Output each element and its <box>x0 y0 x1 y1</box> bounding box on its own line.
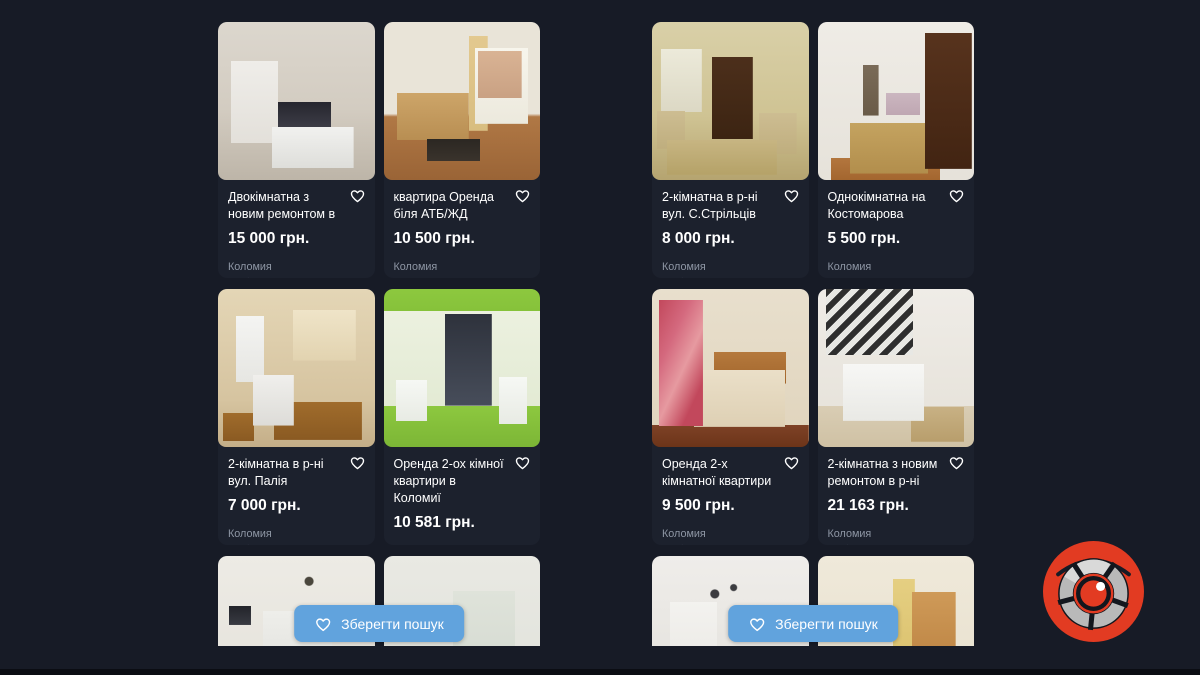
listing-body: 2-кімнатна в р-ні вул. С.Стрільців 8 000… <box>652 180 809 278</box>
favorite-button[interactable] <box>349 454 366 471</box>
listing-body: 2-кімнатна з новим ремонтом в р-ні 21 16… <box>818 447 975 545</box>
listing-photo <box>652 22 809 180</box>
listing-title: квартира Оренда біля АТБ/ЖД <box>394 189 531 223</box>
listing-body: Двокімнатна з новим ремонтом в 15 000 гр… <box>218 180 375 278</box>
listing-price: 10 581 грн. <box>394 514 531 532</box>
listing-date: 24 лютого 2024 <box>828 275 965 278</box>
listing-card[interactable]: Однокімнатна на Костомарова 5 500 грн. К… <box>818 22 975 278</box>
listing-title: 2-кімнатна з новим ремонтом в р-ні <box>828 456 965 490</box>
listing-title: Оренда 2-х кімнатної квартири <box>662 456 799 490</box>
listings-collage: Двокімнатна з новим ремонтом в 15 000 гр… <box>0 0 1200 675</box>
listing-price: 9 500 грн. <box>662 497 799 515</box>
listing-price: 5 500 грн. <box>828 230 965 248</box>
favorite-button[interactable] <box>948 187 965 204</box>
favorite-button[interactable] <box>783 187 800 204</box>
listing-location: Коломия <box>228 259 365 275</box>
listing-date: 14 березня 2024 <box>662 275 799 278</box>
listing-location: Коломия <box>662 259 799 275</box>
heart-icon <box>314 615 332 633</box>
heart-icon <box>349 454 366 471</box>
listing-card[interactable]: 2-кімнатна з новим ремонтом в р-ні 21 16… <box>818 289 975 545</box>
listing-card[interactable]: квартира Оренда біля АТБ/ЖД 10 500 грн. … <box>384 22 541 278</box>
listing-card[interactable]: Оренда 2-х кімнатної квартири 9 500 грн.… <box>652 289 809 545</box>
listing-date: 20 березня 2024 <box>228 542 365 545</box>
listing-photo <box>818 289 975 447</box>
red-eye-logo <box>1043 541 1144 642</box>
heart-icon <box>783 187 800 204</box>
listing-meta: Коломия 19 березня 2024 <box>228 259 365 278</box>
listing-price: 15 000 грн. <box>228 230 365 248</box>
listing-meta: Коломия 15 березня 2024 <box>662 526 799 545</box>
save-search-button[interactable]: Зберегти пошук <box>294 605 464 642</box>
save-search-label: Зберегти пошук <box>341 616 444 632</box>
listing-body: Оренда 2-ох кімної квартири в Коломиї 10… <box>384 447 541 545</box>
listing-card[interactable]: 2-кімнатна в р-ні вул. С.Стрільців 8 000… <box>652 22 809 278</box>
listing-body: квартира Оренда біля АТБ/ЖД 10 500 грн. … <box>384 180 541 278</box>
listing-price: 8 000 грн. <box>662 230 799 248</box>
listing-date: 15 березня 2024 <box>662 542 799 545</box>
listing-meta: Коломия 20 березня 2024 <box>828 526 965 545</box>
listing-location: Коломия <box>828 526 965 542</box>
heart-icon <box>349 187 366 204</box>
favorite-button[interactable] <box>783 454 800 471</box>
listing-meta: Коломия 10 березня 2024 <box>394 543 531 545</box>
save-search-label: Зберегти пошук <box>775 616 878 632</box>
listings-column-left: Двокімнатна з новим ремонтом в 15 000 гр… <box>218 22 540 646</box>
listings-column-right: 2-кімнатна в р-ні вул. С.Стрільців 8 000… <box>652 22 974 646</box>
listing-date: Учора в 15:06 <box>394 275 531 278</box>
listing-meta: Коломия 24 лютого 2024 <box>828 259 965 278</box>
heart-icon <box>514 454 531 471</box>
listing-body: 2-кімнатна в р-ні вул. Палія 7 000 грн. … <box>218 447 375 545</box>
listing-card[interactable]: 2-кімнатна в р-ні вул. Палія 7 000 грн. … <box>218 289 375 545</box>
favorite-button[interactable] <box>349 187 366 204</box>
listing-photo <box>384 22 541 180</box>
listing-title: 2-кімнатна в р-ні вул. С.Стрільців <box>662 189 799 223</box>
listing-meta: Коломия Учора в 15:06 <box>394 259 531 278</box>
listing-price: 7 000 грн. <box>228 497 365 515</box>
heart-icon <box>783 454 800 471</box>
listing-photo <box>218 289 375 447</box>
listing-title: 2-кімнатна в р-ні вул. Палія <box>228 456 365 490</box>
listing-location: Коломия <box>394 259 531 275</box>
listing-card[interactable]: Оренда 2-ох кімної квартири в Коломиї 10… <box>384 289 541 545</box>
listing-meta: Коломия 14 березня 2024 <box>662 259 799 278</box>
listing-body: Оренда 2-х кімнатної квартири 9 500 грн.… <box>652 447 809 545</box>
heart-icon <box>948 454 965 471</box>
heart-icon <box>514 187 531 204</box>
listing-location: Коломия <box>228 526 365 542</box>
listing-meta: Коломия 20 березня 2024 <box>228 526 365 545</box>
listing-location: Коломия <box>662 526 799 542</box>
listing-photo <box>218 22 375 180</box>
favorite-button[interactable] <box>948 454 965 471</box>
favorite-button[interactable] <box>514 454 531 471</box>
listing-photo <box>384 289 541 447</box>
heart-icon <box>748 615 766 633</box>
listing-title: Двокімнатна з новим ремонтом в <box>228 189 365 223</box>
listing-location: Коломия <box>828 259 965 275</box>
listing-title: Однокімнатна на Костомарова <box>828 189 965 223</box>
listing-date: 19 березня 2024 <box>228 275 365 278</box>
listing-date: 20 березня 2024 <box>828 542 965 545</box>
listing-title: Оренда 2-ох кімної квартири в Коломиї <box>394 456 531 507</box>
listing-card[interactable]: Двокімнатна з новим ремонтом в 15 000 гр… <box>218 22 375 278</box>
favorite-button[interactable] <box>514 187 531 204</box>
heart-icon <box>948 187 965 204</box>
listing-body: Однокімнатна на Костомарова 5 500 грн. К… <box>818 180 975 278</box>
listing-price: 21 163 грн. <box>828 497 965 515</box>
listing-photo <box>652 289 809 447</box>
save-search-button[interactable]: Зберегти пошук <box>728 605 898 642</box>
listing-photo <box>818 22 975 180</box>
card-grid-right: 2-кімнатна в р-ні вул. С.Стрільців 8 000… <box>652 22 974 646</box>
bottom-bar <box>0 669 1200 675</box>
listing-location: Коломия <box>394 543 531 545</box>
card-grid-left: Двокімнатна з новим ремонтом в 15 000 гр… <box>218 22 540 646</box>
listing-price: 10 500 грн. <box>394 230 531 248</box>
